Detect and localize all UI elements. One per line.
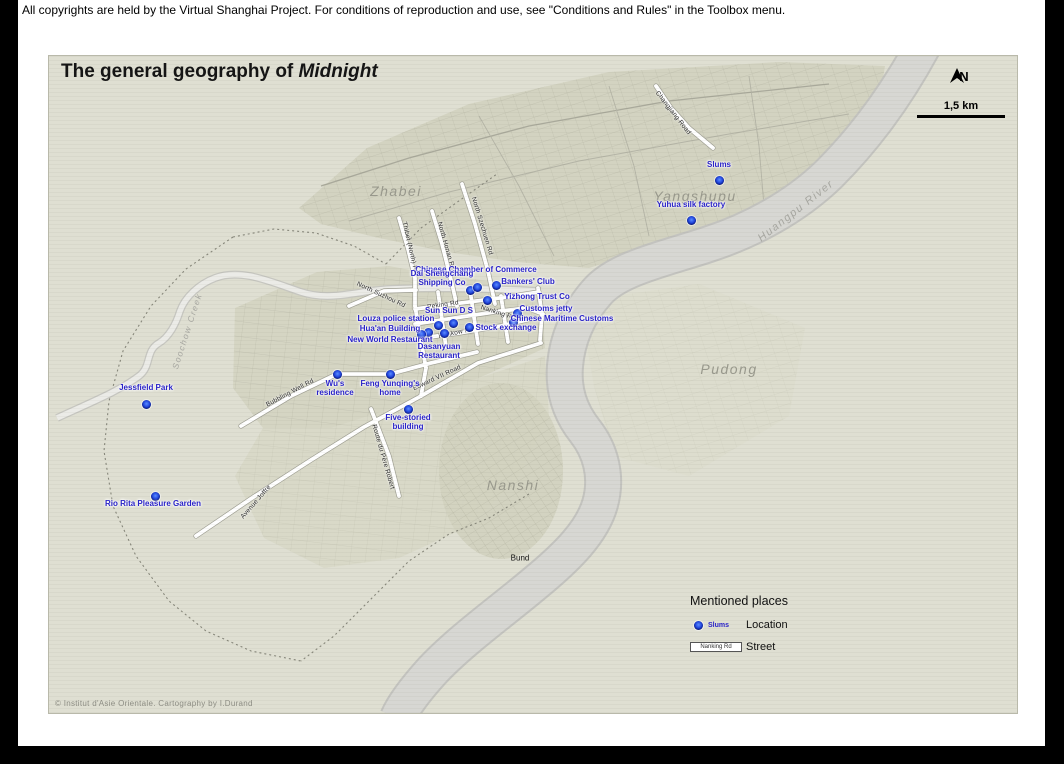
legend-location-sample: Slums [708,622,742,629]
legend-title: Mentioned places [690,594,788,608]
location-label-stock-exchange: Stock exchange [476,323,537,332]
location-label-slums: Slums [707,160,731,169]
legend-location-label: Location [746,619,788,631]
legend-location-row: Slums Location [690,620,788,630]
location-dot-dai-shengchang [473,283,482,292]
location-label-wu-residence: Wu's residence [316,379,353,397]
north-arrow-icon [949,68,965,84]
viewer-window: All copyrights are held by the Virtual S… [0,0,1064,764]
page-title: The general geography of Midnight [61,61,378,83]
location-dot-stock-exchange [465,323,474,332]
location-dot-bankers-club [492,281,501,290]
location-label-maritime-customs: Chinese Maritime Customs [511,314,614,323]
district-label-pudong: Pudong [700,361,757,377]
location-label-jessfield-park: Jessfield Park [119,383,173,392]
map-canvas[interactable]: The general geography of Midnight N 1,5 … [48,55,1018,714]
location-label-rio-rita: Rio Rita Pleasure Garden [105,499,201,508]
bund-label: Bund [511,554,530,563]
location-dot-feng-home [386,370,395,379]
location-label-louza-police: Louza police station [358,314,435,323]
north-arrow: N [949,68,979,84]
location-label-bankers-club: Bankers' Club [501,277,554,286]
location-dot-dasanyuan [440,329,449,338]
legend-street-sample-icon: Nanking Rd [690,642,742,652]
district-label-zhabei: Zhabei [370,183,422,199]
location-label-huaan-building: Hua'an Building [360,324,421,333]
legend-location-dot-icon [694,621,703,630]
scale-label: 1,5 km [917,100,1005,112]
location-dot-slums [715,176,724,185]
location-dot-yuhua-silk-factory [687,216,696,225]
location-label-five-storied: Five-storied building [385,413,430,431]
location-label-yizhong-trust: Yizhong Trust Co [504,292,569,301]
location-dot-jessfield-park [142,400,151,409]
location-label-dasanyuan: Dasanyuan Restaurant [418,342,461,360]
scale-bar-line [917,115,1005,118]
legend: Mentioned places Slums Location Nanking … [690,594,788,652]
location-dot-wu-residence [333,370,342,379]
cartography-credit: © Institut d'Asie Orientale. Cartography… [55,699,253,708]
copyright-text: All copyrights are held by the Virtual S… [22,3,785,17]
district-label-nanshi: Nanshi [487,477,540,493]
location-dot-sun-sun [449,319,458,328]
location-label-feng-home: Feng Yunqing's home [360,379,419,397]
page-title-prefix: The general geography of [61,61,299,82]
map-artwork [49,56,1017,713]
legend-street-row: Nanking Rd Street [690,642,788,652]
location-label-yuhua-silk-factory: Yuhua silk factory [657,200,725,209]
legend-street-label: Street [746,641,775,653]
location-label-dai-shengchang: Dai Shengchang Shipping Co [411,269,474,287]
location-dot-yizhong-trust [483,296,492,305]
map-sheet: All copyrights are held by the Virtual S… [18,0,1045,746]
location-label-customs-jetty: Customs jetty [520,304,573,313]
page-title-emphasis: Midnight [299,61,378,82]
scale-bar: 1,5 km [917,100,1005,118]
